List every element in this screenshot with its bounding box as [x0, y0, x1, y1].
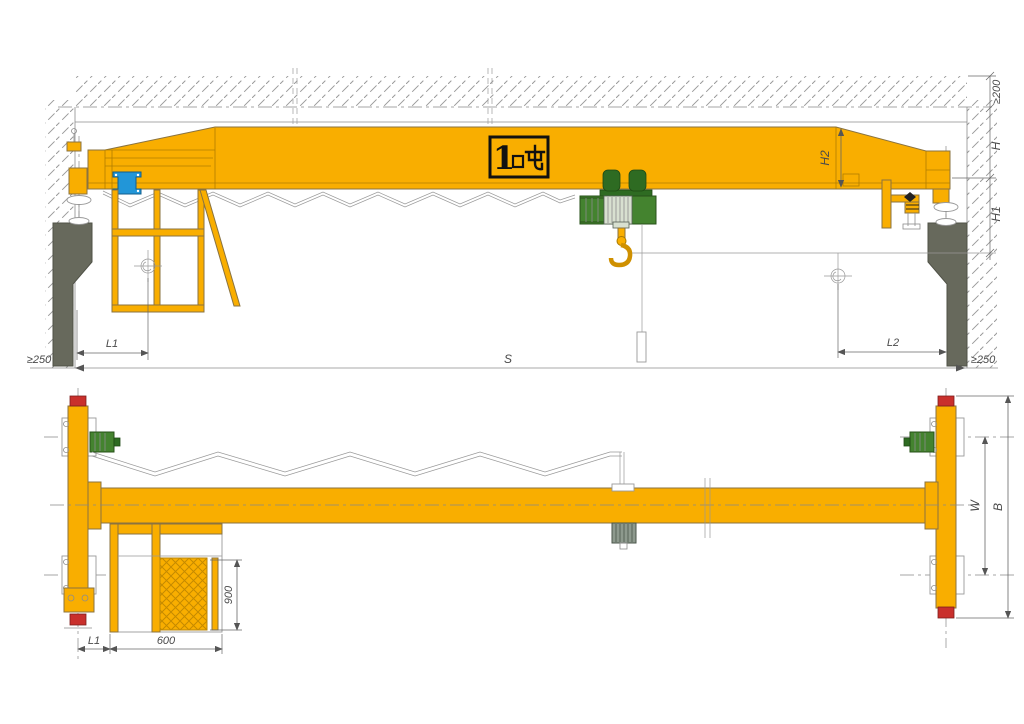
dim-label-900: 900	[223, 585, 235, 604]
capacity-plate: 1	[490, 137, 548, 177]
dim-label-w: W	[968, 499, 982, 512]
crane-technical-drawing: 1	[0, 0, 1024, 724]
pendant-controller	[637, 332, 646, 362]
drawing-canvas: 1	[0, 0, 1024, 724]
dim-label-b: B	[991, 503, 1005, 511]
dim-label-l2: L2	[887, 337, 899, 349]
plan-view: 900 L1 600 W B	[44, 388, 1016, 660]
dim-label-600: 600	[157, 635, 176, 647]
dimensions-elevation: H2 ≥200 H H1 L1 L2 S ≥250 ≥250	[27, 72, 1003, 372]
dim-label-h1: H1	[989, 206, 1003, 221]
elevation-view: 1	[27, 68, 1003, 372]
dim-label-h2: H2	[818, 150, 832, 166]
buffer-left-bottom	[70, 614, 86, 625]
hoist-hook	[611, 228, 630, 265]
runway-column-left	[53, 223, 92, 366]
maintenance-cage	[112, 190, 240, 312]
capacity-number: 1	[493, 139, 515, 177]
dim-label-wall-left: ≥250	[27, 354, 52, 366]
buffer-left-top	[70, 396, 86, 406]
dim-label-span: S	[504, 352, 512, 366]
dim-label-l1: L1	[106, 338, 118, 350]
travel-motor-right	[904, 432, 934, 452]
end-carriage-left	[44, 388, 120, 660]
dim-label-l1-plan: L1	[88, 635, 100, 647]
dim-label-clearance-top: ≥200	[991, 79, 1003, 104]
runway-column-right	[928, 223, 967, 366]
dim-label-wall-right: ≥250	[971, 354, 996, 366]
hoist-trolley-plan	[612, 523, 636, 549]
buffer-right-top	[938, 396, 954, 406]
building-ceiling-hatch	[58, 76, 992, 122]
dim-label-h: H	[989, 141, 1003, 150]
festoon-cable-plan	[92, 452, 634, 491]
festoon-cable	[103, 191, 575, 207]
travel-motor-left	[90, 432, 120, 452]
buffer-right-bottom	[938, 607, 954, 618]
walkway-platform	[110, 524, 222, 632]
building-wall-right	[967, 100, 997, 368]
